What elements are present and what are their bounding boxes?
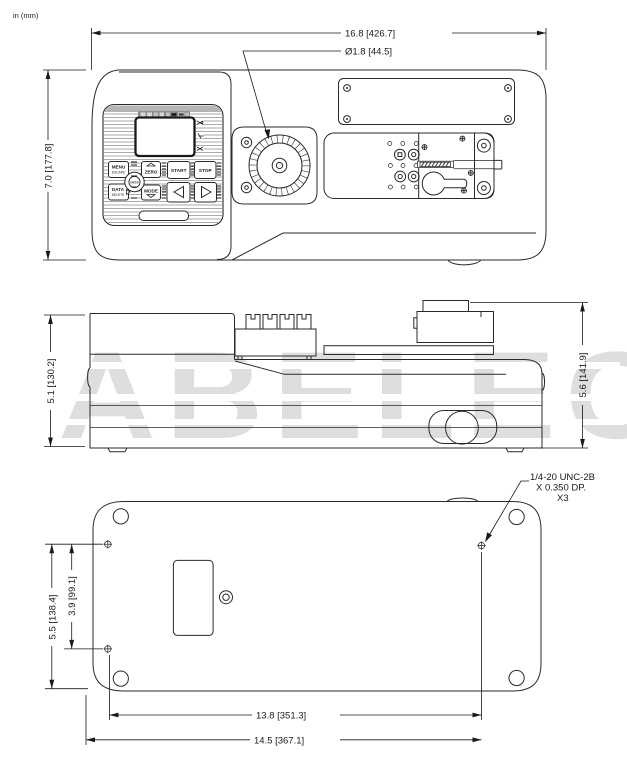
svg-text:Ø1.8 [44.5]: Ø1.8 [44.5] [345, 47, 392, 58]
svg-text:5.6 [141.9]: 5.6 [141.9] [578, 353, 589, 398]
svg-text:5.1 [130.2]: 5.1 [130.2] [46, 359, 57, 404]
svg-text:MODE: MODE [144, 189, 158, 194]
svg-text:14.5 [367.1]: 14.5 [367.1] [254, 735, 304, 746]
svg-text:5.5 [138.4]: 5.5 [138.4] [48, 595, 59, 640]
svg-text:X3: X3 [557, 493, 569, 504]
svg-text:STOP: STOP [199, 168, 213, 174]
svg-text:7.0 [177.8]: 7.0 [177.8] [44, 144, 55, 189]
svg-text:DATA: DATA [112, 187, 125, 192]
svg-text:DELETE: DELETE [112, 193, 124, 197]
svg-text:3.9 [99.1]: 3.9 [99.1] [67, 576, 78, 616]
svg-text:START: START [171, 168, 187, 174]
svg-text:ESCAPE: ESCAPE [112, 171, 125, 175]
svg-text:ZERO: ZERO [145, 170, 158, 175]
svg-text:16.8 [426.7]: 16.8 [426.7] [345, 29, 395, 40]
svg-text:13.8 [351.3]: 13.8 [351.3] [256, 711, 306, 722]
svg-text:X 0.350 DP.: X 0.350 DP. [536, 483, 586, 494]
svg-text:MENU: MENU [112, 165, 126, 170]
svg-text:1/4-20 UNC-2B: 1/4-20 UNC-2B [530, 472, 595, 483]
svg-text:in (mm): in (mm) [13, 11, 39, 20]
svg-text:ENTER: ENTER [130, 181, 138, 184]
